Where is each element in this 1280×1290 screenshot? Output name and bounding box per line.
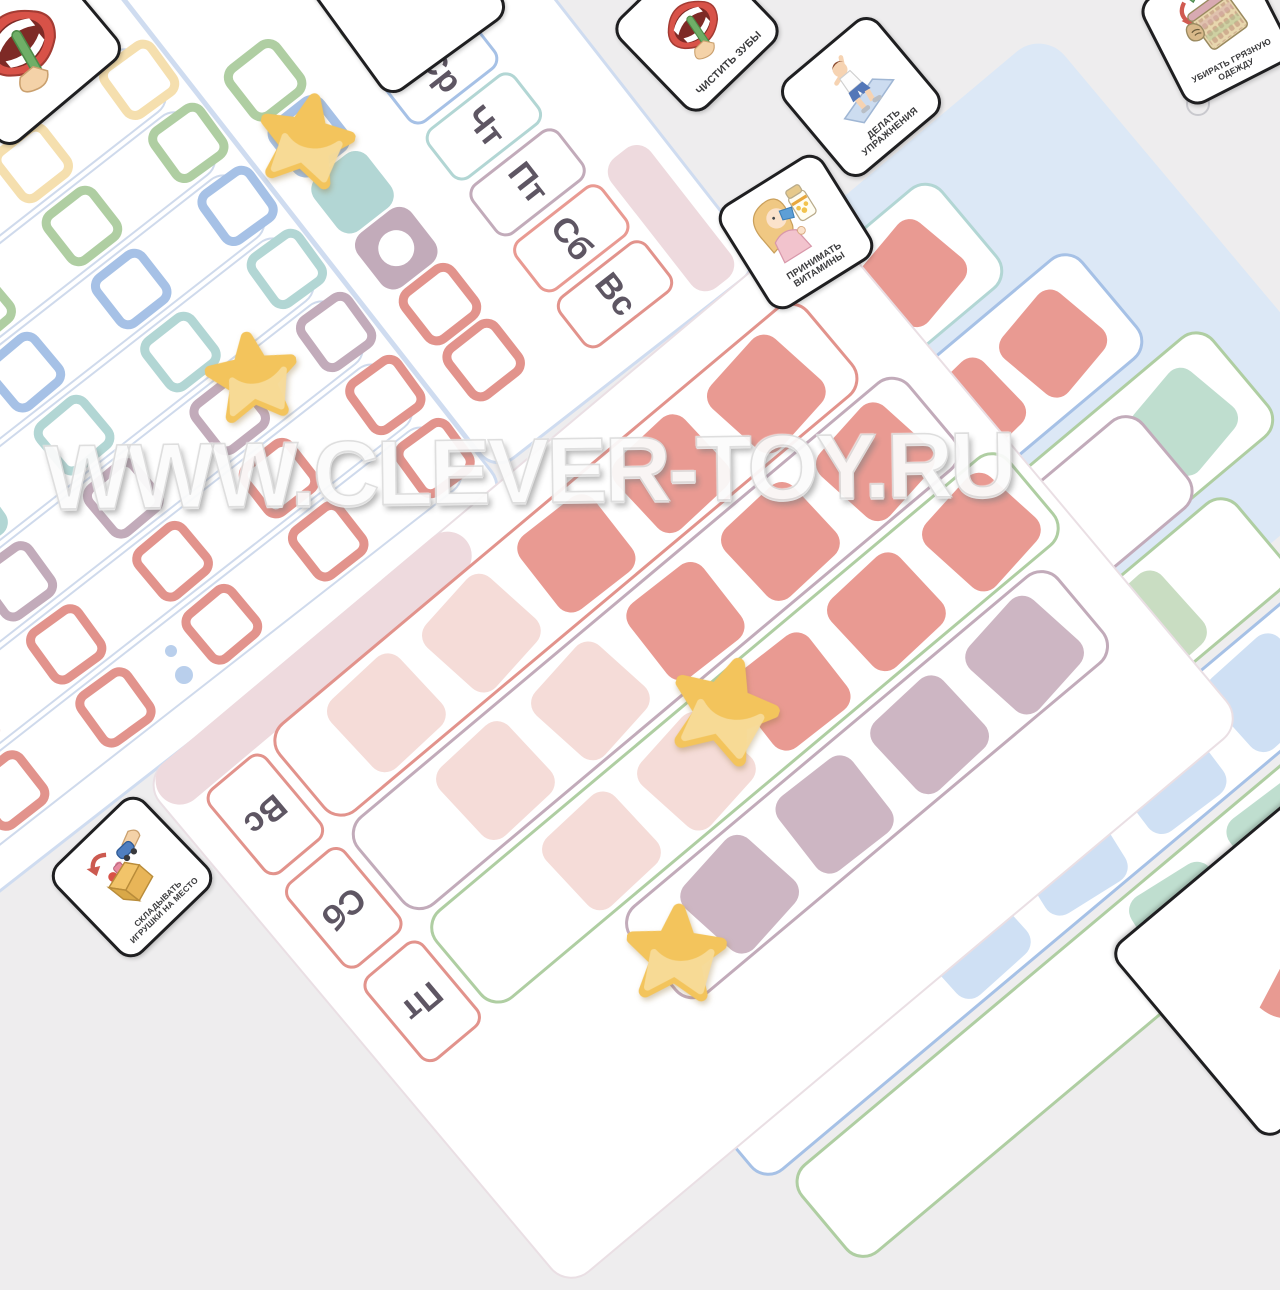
- day-label: Вс: [236, 785, 294, 843]
- star-token: [249, 82, 363, 196]
- magnet-square: [993, 283, 1114, 404]
- day-label: Вс: [586, 265, 643, 323]
- product-photo-routine-planner: { "watermark": { "text": "WWW.CLEVER-TOY…: [0, 0, 1280, 960]
- day-label: Сб: [314, 878, 374, 937]
- star-token: [623, 899, 730, 1006]
- card-laundry: УБИРАТЬ ГРЯЗНУЮ ОДЕЖДУ: [1135, 0, 1280, 111]
- day-label: Пт: [394, 973, 451, 1029]
- board-edge-dot: [165, 645, 177, 657]
- day-label: Сб: [542, 209, 601, 269]
- day-label: Пт: [500, 154, 556, 210]
- star-token: [200, 324, 304, 428]
- comb-icon: [1231, 922, 1280, 1072]
- token-slot-circle: [371, 223, 422, 274]
- board-edge-dot: [175, 666, 193, 684]
- day-label: Чт: [456, 98, 512, 154]
